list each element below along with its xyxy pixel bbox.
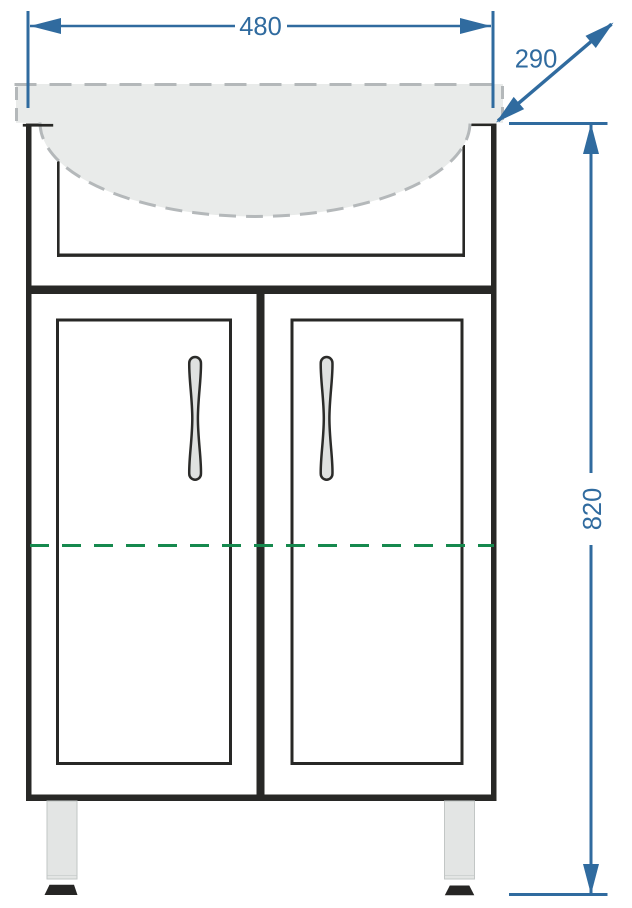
svg-text:480: 480 [239,13,282,41]
svg-text:820: 820 [579,488,607,531]
svg-text:290: 290 [515,46,558,74]
